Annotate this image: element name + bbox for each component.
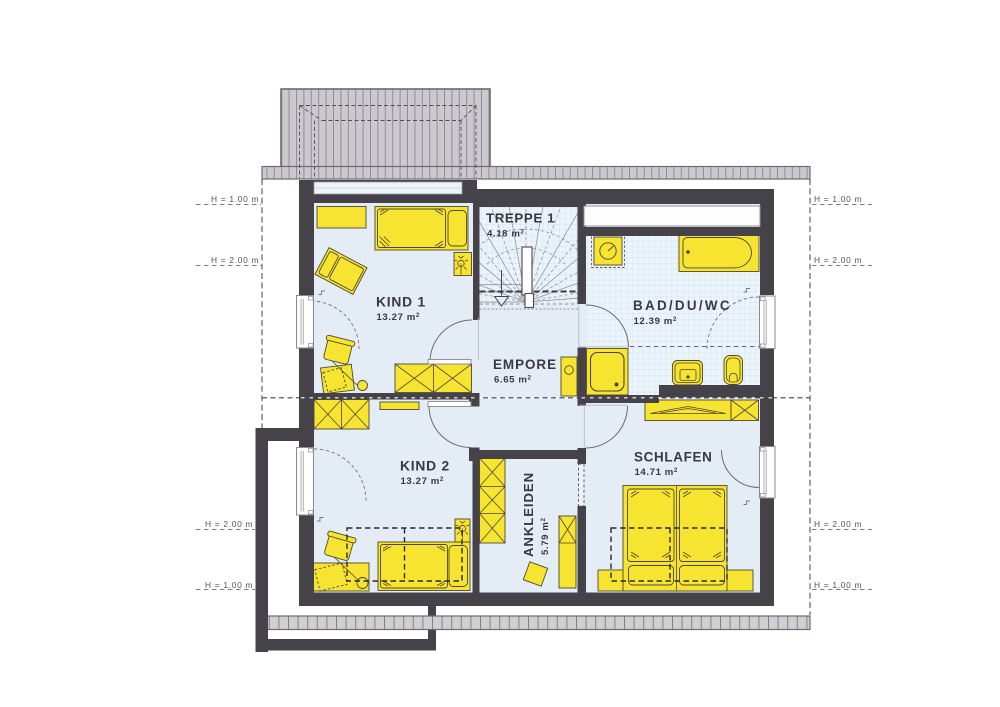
svg-text:4.18 m2: 4.18 m2	[487, 229, 525, 240]
svg-text:H = 2.00 m: H = 2.00 m	[211, 255, 259, 265]
svg-text:SCHLAFEN: SCHLAFEN	[634, 450, 713, 465]
svg-text:EMPORE: EMPORE	[493, 357, 557, 372]
svg-text:H = 1.00 m: H = 1.00 m	[814, 194, 862, 204]
svg-text:5.79 m2: 5.79 m2	[540, 517, 551, 555]
svg-text:TREPPE 1: TREPPE 1	[486, 211, 555, 226]
svg-text:H = 1.00 m: H = 1.00 m	[205, 580, 253, 590]
svg-text:KIND 1: KIND 1	[376, 295, 426, 310]
svg-text:12.39 m2: 12.39 m2	[634, 316, 678, 327]
svg-text:13.27 m2: 13.27 m2	[401, 476, 445, 487]
svg-text:H = 2.00 m: H = 2.00 m	[205, 519, 253, 529]
svg-text:BAD/DU/WC: BAD/DU/WC	[633, 298, 732, 313]
svg-text:H = 1.00 m: H = 1.00 m	[814, 580, 862, 590]
svg-text:H = 1.00 m: H = 1.00 m	[211, 194, 259, 204]
svg-text:H = 2.00 m: H = 2.00 m	[814, 255, 862, 265]
svg-text:ANKLEIDEN: ANKLEIDEN	[521, 472, 536, 557]
svg-text:KIND 2: KIND 2	[400, 459, 450, 474]
svg-text:13.27 m2: 13.27 m2	[377, 312, 421, 323]
svg-text:H = 2.00 m: H = 2.00 m	[814, 519, 862, 529]
svg-text:14.71 m2: 14.71 m2	[635, 467, 679, 478]
svg-text:6.65 m2: 6.65 m2	[494, 375, 532, 386]
